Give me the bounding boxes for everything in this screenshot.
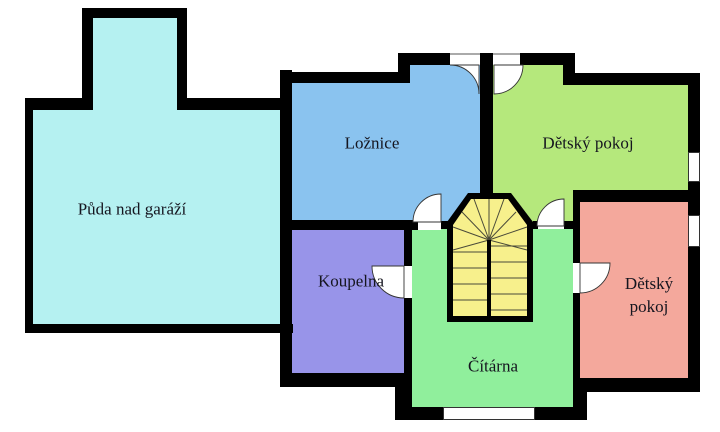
door-opening — [404, 266, 412, 298]
room-label-citarna: Čítárna — [468, 355, 518, 378]
door-opening — [573, 263, 580, 293]
room-label-detsky-pravy-line1: Dětský — [625, 272, 673, 295]
door-swing-arc — [537, 199, 564, 226]
room-label-puda: Půda nad garáží — [78, 198, 187, 221]
door-opening — [450, 53, 480, 65]
room-label-detsky-pravy-line2: pokoj — [625, 295, 673, 318]
window — [689, 153, 700, 182]
room-label-detsky-horni: Dětský pokoj — [542, 132, 633, 155]
room-label-koupelna: Koupelna — [318, 270, 384, 293]
staircase-center-divider — [487, 240, 491, 316]
door-swing-arc — [450, 65, 479, 94]
door-swing-arc — [580, 263, 610, 293]
door-opening — [418, 222, 441, 230]
staircase — [447, 193, 533, 322]
room-label-detsky-pravy: Dětský pokoj — [625, 272, 673, 318]
window — [689, 216, 700, 247]
door-swing-arc — [494, 65, 523, 94]
room-label-loznice: Ložnice — [345, 132, 400, 155]
door-swing-arc — [413, 194, 441, 222]
door-opening — [493, 53, 520, 65]
window — [444, 408, 535, 420]
floor-plan: Půda nad garáží Ložnice Dětský pokoj Kou… — [0, 0, 720, 432]
